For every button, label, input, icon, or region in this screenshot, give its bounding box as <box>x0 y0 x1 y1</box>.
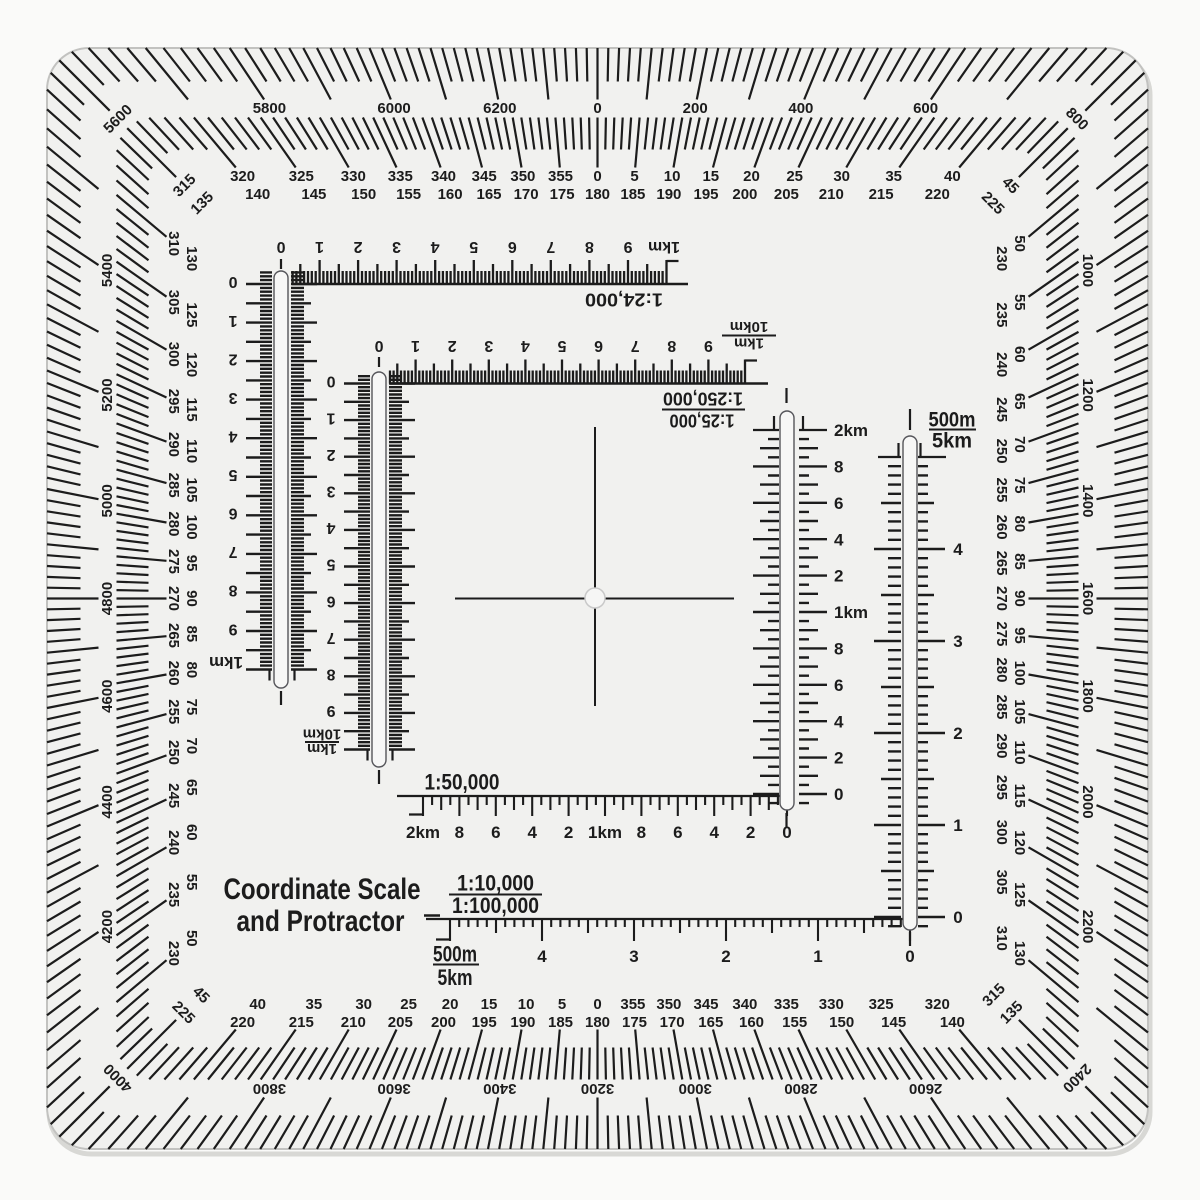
svg-text:1: 1 <box>813 947 822 966</box>
svg-text:120: 120 <box>183 352 200 377</box>
svg-text:6: 6 <box>508 238 517 255</box>
svg-text:145: 145 <box>301 186 326 203</box>
svg-text:4: 4 <box>228 427 237 444</box>
svg-text:2600: 2600 <box>909 1080 942 1097</box>
svg-text:4: 4 <box>521 337 530 354</box>
svg-text:185: 185 <box>548 1014 573 1031</box>
svg-text:6000: 6000 <box>377 100 410 117</box>
svg-text:180: 180 <box>585 186 610 203</box>
svg-text:295: 295 <box>993 775 1010 800</box>
svg-text:210: 210 <box>341 1014 366 1031</box>
svg-text:1: 1 <box>315 238 324 255</box>
svg-text:8: 8 <box>326 666 335 683</box>
svg-text:285: 285 <box>993 694 1010 719</box>
svg-text:235: 235 <box>165 882 182 907</box>
svg-text:125: 125 <box>183 302 200 327</box>
svg-text:5: 5 <box>557 337 566 354</box>
svg-text:55: 55 <box>1011 294 1028 311</box>
svg-text:3: 3 <box>326 482 335 499</box>
svg-text:500m: 500m <box>433 941 477 966</box>
svg-text:1:24,000: 1:24,000 <box>585 290 663 310</box>
svg-text:8: 8 <box>637 823 646 842</box>
svg-text:155: 155 <box>782 1014 807 1031</box>
svg-text:10: 10 <box>664 168 681 185</box>
svg-text:85: 85 <box>1011 553 1028 570</box>
svg-text:2: 2 <box>834 749 843 768</box>
svg-text:7: 7 <box>228 543 237 560</box>
svg-text:80: 80 <box>1011 516 1028 533</box>
svg-text:130: 130 <box>1011 941 1028 966</box>
svg-text:95: 95 <box>1011 627 1028 644</box>
svg-text:20: 20 <box>442 996 459 1013</box>
svg-text:5km: 5km <box>932 430 972 453</box>
svg-text:130: 130 <box>183 246 200 271</box>
svg-text:10: 10 <box>518 996 535 1013</box>
svg-text:1800: 1800 <box>1079 680 1096 713</box>
svg-text:6: 6 <box>834 494 843 513</box>
svg-text:4: 4 <box>431 238 440 255</box>
svg-text:210: 210 <box>819 186 844 203</box>
svg-text:120: 120 <box>1011 830 1028 855</box>
svg-text:10km: 10km <box>303 726 341 743</box>
svg-text:5: 5 <box>630 168 638 185</box>
svg-text:25: 25 <box>786 168 803 185</box>
svg-text:1km: 1km <box>734 335 764 352</box>
svg-text:0: 0 <box>593 168 601 185</box>
svg-text:2800: 2800 <box>784 1080 817 1097</box>
svg-text:280: 280 <box>165 511 182 536</box>
svg-text:60: 60 <box>183 824 200 841</box>
svg-text:10km: 10km <box>730 318 768 335</box>
svg-text:185: 185 <box>620 186 645 203</box>
svg-text:100: 100 <box>183 515 200 540</box>
svg-text:300: 300 <box>165 342 182 367</box>
svg-text:70: 70 <box>183 738 200 755</box>
svg-text:1000: 1000 <box>1079 254 1096 287</box>
svg-text:2: 2 <box>564 823 573 842</box>
svg-text:340: 340 <box>431 168 456 185</box>
svg-text:70: 70 <box>1011 436 1028 453</box>
svg-text:280: 280 <box>993 657 1010 682</box>
svg-text:6: 6 <box>673 823 682 842</box>
svg-text:2km: 2km <box>834 421 868 440</box>
svg-text:170: 170 <box>660 1014 685 1031</box>
svg-text:1km: 1km <box>588 823 622 842</box>
svg-text:1600: 1600 <box>1079 582 1096 615</box>
svg-text:2000: 2000 <box>1079 785 1096 818</box>
svg-text:9: 9 <box>704 337 713 354</box>
svg-text:255: 255 <box>165 699 182 724</box>
svg-text:265: 265 <box>993 551 1010 576</box>
svg-text:140: 140 <box>245 186 270 203</box>
svg-text:165: 165 <box>476 186 501 203</box>
svg-text:165: 165 <box>698 1014 723 1031</box>
svg-text:290: 290 <box>993 733 1010 758</box>
svg-text:1: 1 <box>228 312 237 329</box>
svg-text:8: 8 <box>228 582 237 599</box>
svg-text:4400: 4400 <box>99 785 116 818</box>
svg-text:Coordinate Scale: Coordinate Scale <box>224 873 421 906</box>
svg-text:0: 0 <box>593 996 601 1013</box>
svg-text:1:10,000: 1:10,000 <box>457 870 534 895</box>
svg-text:1km: 1km <box>834 603 868 622</box>
svg-text:265: 265 <box>165 623 182 648</box>
svg-text:105: 105 <box>183 477 200 502</box>
svg-text:5: 5 <box>469 238 478 255</box>
svg-text:30: 30 <box>355 996 372 1013</box>
svg-text:65: 65 <box>1011 393 1028 410</box>
svg-text:7: 7 <box>326 629 335 646</box>
svg-text:3: 3 <box>484 337 493 354</box>
svg-text:6: 6 <box>228 505 237 522</box>
svg-text:9: 9 <box>623 238 632 255</box>
svg-text:1km: 1km <box>307 740 337 757</box>
svg-text:200: 200 <box>732 186 757 203</box>
svg-text:190: 190 <box>656 186 681 203</box>
svg-text:200: 200 <box>431 1014 456 1031</box>
svg-text:0: 0 <box>593 100 601 117</box>
svg-text:0: 0 <box>276 238 285 255</box>
svg-text:0: 0 <box>834 785 843 804</box>
svg-text:175: 175 <box>622 1014 647 1031</box>
svg-text:85: 85 <box>183 626 200 643</box>
svg-text:345: 345 <box>693 996 718 1013</box>
svg-text:250: 250 <box>165 740 182 765</box>
svg-text:65: 65 <box>183 779 200 796</box>
svg-text:6: 6 <box>834 676 843 695</box>
svg-text:3200: 3200 <box>581 1080 614 1097</box>
svg-text:1: 1 <box>411 337 420 354</box>
svg-text:4: 4 <box>527 823 537 842</box>
svg-text:8: 8 <box>834 458 843 477</box>
svg-text:2: 2 <box>746 823 755 842</box>
svg-text:325: 325 <box>289 168 314 185</box>
svg-text:0: 0 <box>326 373 335 390</box>
svg-text:2: 2 <box>834 567 843 586</box>
svg-text:340: 340 <box>732 996 757 1013</box>
svg-text:6: 6 <box>594 337 603 354</box>
svg-text:5km: 5km <box>438 965 473 990</box>
svg-text:245: 245 <box>993 397 1010 422</box>
svg-text:35: 35 <box>885 168 902 185</box>
svg-text:4: 4 <box>953 540 963 559</box>
svg-text:230: 230 <box>165 941 182 966</box>
svg-text:5800: 5800 <box>253 100 286 117</box>
svg-text:350: 350 <box>510 168 535 185</box>
svg-text:155: 155 <box>396 186 421 203</box>
svg-text:335: 335 <box>774 996 799 1013</box>
svg-text:25: 25 <box>400 996 417 1013</box>
svg-text:4800: 4800 <box>99 582 116 615</box>
svg-text:240: 240 <box>993 352 1010 377</box>
svg-text:500m: 500m <box>929 409 976 432</box>
svg-text:235: 235 <box>993 302 1010 327</box>
svg-text:1: 1 <box>326 409 335 426</box>
svg-text:6: 6 <box>326 592 335 609</box>
svg-text:275: 275 <box>993 621 1010 646</box>
svg-text:220: 220 <box>925 186 950 203</box>
svg-text:600: 600 <box>913 100 938 117</box>
svg-text:170: 170 <box>514 186 539 203</box>
svg-text:150: 150 <box>351 186 376 203</box>
svg-text:160: 160 <box>739 1014 764 1031</box>
svg-text:75: 75 <box>1011 477 1028 494</box>
svg-text:5: 5 <box>228 466 237 483</box>
svg-text:240: 240 <box>165 830 182 855</box>
svg-text:4600: 4600 <box>99 680 116 713</box>
svg-text:215: 215 <box>869 186 894 203</box>
svg-text:0: 0 <box>905 947 914 966</box>
svg-text:3: 3 <box>953 632 962 651</box>
svg-text:195: 195 <box>472 1014 497 1031</box>
svg-text:0: 0 <box>782 823 791 842</box>
svg-text:8: 8 <box>455 823 464 842</box>
svg-text:220: 220 <box>230 1014 255 1031</box>
svg-text:305: 305 <box>993 870 1010 895</box>
svg-text:310: 310 <box>993 926 1010 951</box>
svg-text:180: 180 <box>585 1014 610 1031</box>
svg-text:15: 15 <box>481 996 498 1013</box>
svg-text:40: 40 <box>249 996 266 1013</box>
svg-text:145: 145 <box>881 1014 906 1031</box>
svg-text:250: 250 <box>993 439 1010 464</box>
svg-text:50: 50 <box>183 930 200 947</box>
svg-text:0: 0 <box>228 273 237 290</box>
svg-text:110: 110 <box>1011 740 1028 764</box>
svg-text:205: 205 <box>388 1014 413 1031</box>
svg-text:3400: 3400 <box>483 1080 516 1097</box>
svg-text:190: 190 <box>510 1014 535 1031</box>
svg-text:290: 290 <box>165 432 182 457</box>
svg-text:335: 335 <box>388 168 413 185</box>
svg-text:2: 2 <box>326 446 335 463</box>
svg-text:2km: 2km <box>406 823 440 842</box>
svg-text:7: 7 <box>546 238 555 255</box>
svg-text:1400: 1400 <box>1079 484 1096 517</box>
svg-text:40: 40 <box>944 168 961 185</box>
svg-text:0: 0 <box>953 908 962 927</box>
svg-text:5200: 5200 <box>99 378 116 411</box>
svg-text:50: 50 <box>1011 235 1028 252</box>
svg-text:1:25,000: 1:25,000 <box>670 411 735 431</box>
svg-text:330: 330 <box>341 168 366 185</box>
svg-text:330: 330 <box>819 996 844 1013</box>
svg-text:260: 260 <box>165 661 182 686</box>
svg-text:2: 2 <box>953 724 962 743</box>
svg-text:200: 200 <box>683 100 708 117</box>
svg-text:105: 105 <box>1011 699 1028 724</box>
svg-text:260: 260 <box>993 515 1010 540</box>
svg-text:215: 215 <box>289 1014 314 1031</box>
svg-text:3: 3 <box>392 238 401 255</box>
svg-text:205: 205 <box>774 186 799 203</box>
svg-text:355: 355 <box>620 996 645 1013</box>
svg-text:3800: 3800 <box>253 1080 286 1097</box>
svg-text:30: 30 <box>833 168 850 185</box>
svg-text:35: 35 <box>306 996 323 1013</box>
svg-text:5: 5 <box>558 996 566 1013</box>
svg-text:80: 80 <box>183 662 200 679</box>
svg-text:230: 230 <box>993 246 1010 271</box>
svg-text:160: 160 <box>438 186 463 203</box>
svg-text:275: 275 <box>165 549 182 574</box>
svg-text:300: 300 <box>993 820 1010 845</box>
svg-text:1200: 1200 <box>1079 378 1096 411</box>
svg-text:8: 8 <box>585 238 594 255</box>
svg-text:245: 245 <box>165 783 182 808</box>
svg-text:60: 60 <box>1011 346 1028 363</box>
svg-text:90: 90 <box>183 590 200 607</box>
svg-text:115: 115 <box>1011 784 1028 808</box>
svg-text:150: 150 <box>829 1014 854 1031</box>
svg-text:4: 4 <box>834 712 844 731</box>
svg-text:1: 1 <box>953 816 962 835</box>
svg-text:3600: 3600 <box>377 1080 410 1097</box>
svg-text:270: 270 <box>993 586 1010 611</box>
svg-text:270: 270 <box>165 586 182 611</box>
svg-text:125: 125 <box>1011 882 1028 907</box>
svg-text:9: 9 <box>326 702 335 719</box>
svg-text:8: 8 <box>667 337 676 354</box>
svg-text:3: 3 <box>629 947 638 966</box>
svg-text:and Protractor: and Protractor <box>237 905 405 938</box>
svg-text:2: 2 <box>228 350 237 367</box>
svg-text:355: 355 <box>548 168 573 185</box>
svg-text:320: 320 <box>230 168 255 185</box>
svg-text:4200: 4200 <box>99 910 116 943</box>
svg-text:140: 140 <box>940 1014 965 1031</box>
svg-text:295: 295 <box>165 389 182 414</box>
svg-text:15: 15 <box>702 168 719 185</box>
svg-text:345: 345 <box>472 168 497 185</box>
svg-text:350: 350 <box>656 996 681 1013</box>
svg-text:285: 285 <box>165 473 182 498</box>
svg-text:310: 310 <box>165 231 182 256</box>
svg-text:1:250,000: 1:250,000 <box>663 389 743 409</box>
svg-text:175: 175 <box>550 186 575 203</box>
svg-text:195: 195 <box>693 186 718 203</box>
svg-text:0: 0 <box>374 337 383 354</box>
svg-text:4: 4 <box>537 947 547 966</box>
svg-text:400: 400 <box>788 100 813 117</box>
svg-text:2200: 2200 <box>1079 910 1096 943</box>
svg-text:110: 110 <box>183 439 200 463</box>
svg-text:8: 8 <box>834 640 843 659</box>
svg-text:6: 6 <box>491 823 500 842</box>
svg-text:2: 2 <box>354 238 363 255</box>
svg-text:20: 20 <box>743 168 760 185</box>
svg-text:95: 95 <box>183 555 200 572</box>
svg-text:7: 7 <box>631 337 640 354</box>
svg-text:2: 2 <box>721 947 730 966</box>
svg-text:2: 2 <box>448 337 457 354</box>
svg-text:5400: 5400 <box>99 254 116 287</box>
svg-text:3: 3 <box>228 389 237 406</box>
svg-text:1km: 1km <box>209 653 243 672</box>
svg-text:5: 5 <box>326 556 335 573</box>
svg-text:4: 4 <box>834 530 844 549</box>
svg-text:6200: 6200 <box>483 100 516 117</box>
svg-text:320: 320 <box>925 996 950 1013</box>
svg-text:1km: 1km <box>648 238 680 255</box>
svg-text:75: 75 <box>183 699 200 716</box>
svg-text:100: 100 <box>1011 661 1028 686</box>
svg-text:115: 115 <box>183 397 200 421</box>
svg-text:305: 305 <box>165 290 182 315</box>
svg-text:1:50,000: 1:50,000 <box>425 769 500 794</box>
svg-text:3000: 3000 <box>679 1080 712 1097</box>
svg-text:9: 9 <box>228 620 237 637</box>
svg-text:90: 90 <box>1011 590 1028 607</box>
svg-text:325: 325 <box>869 996 894 1013</box>
svg-text:55: 55 <box>183 874 200 891</box>
svg-text:4: 4 <box>326 519 335 536</box>
svg-text:4: 4 <box>709 823 719 842</box>
svg-text:1:100,000: 1:100,000 <box>452 893 539 918</box>
svg-text:5000: 5000 <box>99 484 116 517</box>
svg-text:255: 255 <box>993 477 1010 502</box>
